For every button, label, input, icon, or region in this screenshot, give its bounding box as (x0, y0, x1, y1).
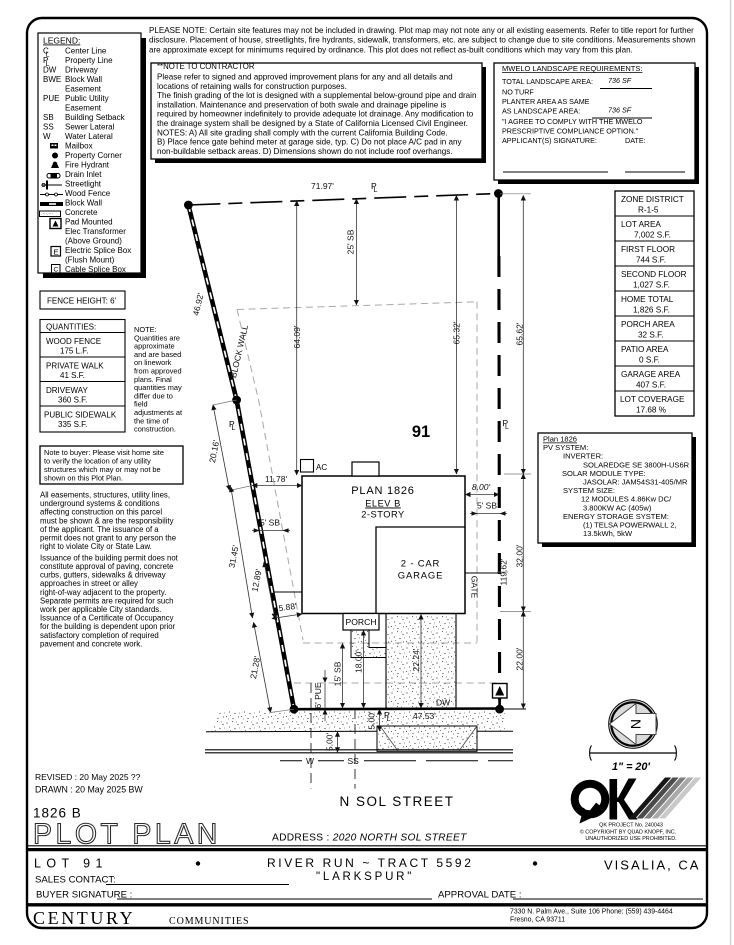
svg-text:locations of retaining walls f: locations of retaining walls for constru… (157, 82, 347, 91)
svg-text:© COPYRIGHT BY QUAD KNOPF, I: © COPYRIGHT BY QUAD KNOPF, INC. (580, 828, 676, 835)
svg-text:construction.: construction. (134, 425, 176, 434)
svg-text:17.68 %: 17.68 % (636, 406, 666, 415)
svg-text:E: E (54, 248, 59, 257)
svg-text:DW: DW (43, 66, 57, 75)
svg-text:Center Line: Center Line (65, 47, 107, 56)
svg-text:L: L (232, 425, 236, 432)
svg-text:LOT 91: LOT 91 (34, 857, 108, 871)
svg-text:119.62': 119.62' (499, 558, 509, 585)
svg-text:The finish grading of the lot: The finish grading of the lot is designe… (157, 91, 476, 100)
svg-text:Fresno, CA 93711: Fresno, CA 93711 (510, 917, 565, 924)
svg-text:DW: DW (436, 698, 450, 708)
svg-text:25' SB: 25' SB (345, 229, 355, 254)
svg-text:41 S.F.: 41 S.F. (60, 371, 85, 380)
svg-text:ZONE DISTRICT: ZONE DISTRICT (621, 195, 684, 204)
svg-text:QK PROJECT No. 240043: QK PROJECT No. 240043 (599, 822, 663, 828)
svg-text:6' PUE: 6' PUE (313, 682, 323, 709)
svg-text:ADDRESS : 2020 NORTH SOL STRE: ADDRESS : 2020 NORTH SOL STREET (272, 833, 467, 844)
svg-text:PLAN 1826: PLAN 1826 (351, 485, 414, 497)
svg-text:HOME TOTAL: HOME TOTAL (621, 295, 674, 304)
svg-text:71.97': 71.97' (311, 181, 334, 191)
svg-text:GARAGE AREA: GARAGE AREA (621, 370, 681, 379)
svg-text:GATE: GATE (470, 576, 480, 599)
svg-text:MWELO LANDSCAPE REQUIREMENTS:: MWELO LANDSCAPE REQUIREMENTS: (502, 64, 642, 73)
svg-text:22.24': 22.24' (411, 648, 421, 671)
svg-text:Building Setback: Building Setback (65, 113, 126, 122)
svg-text:22.00': 22.00' (515, 647, 525, 670)
svg-text:N: N (628, 719, 644, 729)
svg-text:5' SB: 5' SB (477, 501, 497, 511)
svg-text:13.5kWh, 5kW: 13.5kWh, 5kW (583, 529, 633, 538)
svg-text:VISALIA, CA: VISALIA, CA (604, 858, 700, 873)
svg-text:PLANTER AREA AS SAME: PLANTER AREA AS SAME (502, 97, 590, 106)
svg-text:Property Corner: Property Corner (65, 151, 122, 160)
svg-text:PRESCRIPTIVE COMPLIANCE OPTION: PRESCRIPTIVE COMPLIANCE OPTION." (502, 127, 639, 136)
svg-text:407 S.F.: 407 S.F. (636, 381, 666, 390)
svg-text:Water Lateral: Water Lateral (65, 132, 113, 141)
svg-text:·⋯·⋯: ·⋯·⋯ (41, 212, 53, 217)
svg-text:Easement: Easement (65, 104, 102, 113)
svg-text:right to violate City or State: right to violate City or State Law. (40, 542, 152, 551)
svg-text:PUE: PUE (43, 94, 59, 103)
svg-text:LEGEND:: LEGEND: (43, 36, 80, 46)
svg-text:Fire Hydrant: Fire Hydrant (65, 161, 110, 170)
svg-text:DATE:: DATE: (625, 136, 646, 145)
svg-text:PORCH: PORCH (346, 617, 377, 627)
svg-text:Property Line: Property Line (65, 56, 113, 65)
svg-text:"I AGREE TO COMPLY WITH THE MW: "I AGREE TO COMPLY WITH THE MWELO (502, 117, 643, 126)
svg-text:PRIVATE WALK: PRIVATE WALK (46, 362, 104, 371)
svg-text:WOOD FENCE: WOOD FENCE (46, 337, 101, 346)
svg-text:(Flush Mount): (Flush Mount) (65, 256, 115, 265)
svg-text:REVISED : 20 May 2025 ??: REVISED : 20 May 2025 ?? (35, 772, 141, 782)
svg-text:B) Place fence gate behind met: B) Place fence gate behind meter at gara… (157, 138, 463, 147)
svg-text:Public Utility: Public Utility (65, 94, 109, 103)
svg-text:UNAUTHORIZED USE PROHIBITED.: UNAUTHORIZED USE PROHIBITED. (585, 836, 676, 842)
svg-text:PORCH AREA: PORCH AREA (621, 320, 675, 329)
svg-text:disclosure. Placement of hous: disclosure. Placement of house, streetli… (149, 36, 696, 45)
svg-text:2 - CAR: 2 - CAR (401, 559, 440, 570)
svg-text:C: C (54, 267, 59, 274)
svg-text:Driveway: Driveway (65, 66, 98, 75)
svg-text:Drain Inlet: Drain Inlet (65, 170, 102, 179)
svg-text:ELEV B: ELEV B (365, 499, 401, 509)
svg-text:736 SF: 736 SF (608, 106, 632, 115)
svg-text:Block Wall: Block Wall (65, 199, 102, 208)
svg-text:Wood Fence: Wood Fence (65, 189, 111, 198)
svg-text:PLEASE NOTE: Certain site fea: PLEASE NOTE: Certain site features may n… (149, 26, 694, 35)
svg-text:1,826 S.F.: 1,826 S.F. (633, 306, 670, 315)
svg-text:5.00': 5.00' (367, 711, 377, 730)
svg-text:the drainage system shall be d: the drainage system shall be designed by… (157, 119, 468, 128)
svg-text:TOTAL LANDSCAPE AREA:: TOTAL LANDSCAPE AREA: (502, 77, 593, 86)
svg-text:335 S.F.: 335 S.F. (58, 420, 87, 429)
svg-text:PUBLIC SIDEWALK: PUBLIC SIDEWALK (44, 411, 117, 420)
svg-text:Pad Mounted: Pad Mounted (65, 218, 113, 227)
svg-text:Block Wall: Block Wall (65, 75, 102, 84)
svg-text:736 SF: 736 SF (608, 76, 632, 85)
svg-text:1,027 S.F.: 1,027 S.F. (633, 281, 670, 290)
svg-text:DRIVEWAY: DRIVEWAY (46, 386, 88, 395)
svg-text:PLOT PLAN: PLOT PLAN (33, 819, 221, 851)
svg-text:GARAGE: GARAGE (398, 571, 443, 582)
svg-text:SS: SS (348, 756, 360, 766)
svg-text:AS LANDSCAPE AREA:: AS LANDSCAPE AREA: (502, 107, 580, 116)
svg-text:AC: AC (316, 463, 327, 472)
svg-text:APPLICANT(S) SIGNATURE:: APPLICANT(S) SIGNATURE: (502, 136, 597, 145)
svg-text:R-1-5: R-1-5 (638, 206, 659, 215)
svg-text:Please refer to signed and app: Please refer to signed and approved impr… (157, 73, 453, 82)
svg-text:32.00': 32.00' (515, 544, 525, 567)
svg-text:LOT AREA: LOT AREA (621, 220, 661, 229)
svg-text:175 L.F.: 175 L.F. (60, 347, 88, 356)
svg-text:SS: SS (43, 123, 54, 132)
svg-text:8.00': 8.00' (472, 482, 491, 492)
svg-text:**NOTE TO CONTRACTOR: **NOTE TO CONTRACTOR (157, 62, 255, 71)
svg-text:FENCE HEIGHT: 6': FENCE HEIGHT: 6' (47, 297, 117, 306)
svg-text:CENTURY: CENTURY (33, 908, 135, 928)
svg-text:Cable Splice Box: Cable Splice Box (65, 265, 126, 274)
svg-text:APPROVAL DATE :: APPROVAL DATE : (438, 890, 522, 901)
svg-text:non-buildable setback areas.: non-buildable setback areas. D) Dimensio… (157, 147, 453, 156)
svg-text:installation. Maintenance and: installation. Maintenance and preservati… (157, 100, 446, 109)
svg-text:Mailbox: Mailbox (65, 142, 93, 151)
svg-text:64.09': 64.09' (292, 325, 302, 348)
svg-text:Sewer Lateral: Sewer Lateral (65, 123, 115, 132)
svg-text:SB: SB (43, 113, 54, 122)
svg-text:Concrete: Concrete (65, 208, 98, 217)
svg-text:7,002 S.F.: 7,002 S.F. (634, 231, 671, 240)
svg-text:shown on this Plot Plan.: shown on this Plot Plan. (44, 474, 123, 483)
svg-text:47.53': 47.53' (413, 711, 436, 721)
svg-text:32 S.F.: 32 S.F. (638, 331, 664, 340)
svg-text:SALES CONTACT:: SALES CONTACT: (35, 875, 116, 886)
svg-text:65.62': 65.62' (515, 322, 525, 345)
svg-text:65.32': 65.32' (452, 321, 462, 344)
svg-text:0 S.F.: 0 S.F. (639, 356, 660, 365)
svg-text:DRAWN : 20 May 2025 BW: DRAWN : 20 May 2025 BW (35, 785, 143, 795)
svg-text:744 S.F.: 744 S.F. (636, 256, 666, 265)
svg-text:PATIO AREA: PATIO AREA (621, 345, 669, 354)
svg-text:(Above Ground): (Above Ground) (65, 237, 122, 246)
svg-text:L: L (374, 187, 378, 194)
svg-text:5' SB: 5' SB (260, 518, 280, 528)
svg-text:18.00': 18.00' (354, 650, 364, 673)
svg-text:W: W (306, 756, 314, 766)
svg-text:1" = 20': 1" = 20' (612, 761, 650, 773)
svg-text:Elec Transformer: Elec Transformer (65, 227, 126, 236)
svg-text:Electric Splice Box: Electric Splice Box (65, 246, 131, 255)
svg-text:5.00': 5.00' (325, 733, 335, 752)
svg-text:QUANTITIES:: QUANTITIES: (46, 323, 96, 332)
svg-text:pavement and concrete work.: pavement and concrete work. (40, 639, 142, 648)
svg-text:BWE: BWE (43, 75, 61, 84)
svg-text:FIRST FLOOR: FIRST FLOOR (621, 245, 675, 254)
svg-text:"LARKSPUR": "LARKSPUR" (316, 871, 414, 883)
svg-text:Streetlight: Streetlight (65, 180, 102, 189)
svg-text:LOT COVERAGE: LOT COVERAGE (620, 395, 685, 404)
svg-text:Easement: Easement (65, 85, 102, 94)
svg-text:are approximate except for min: are approximate except for minimums requ… (149, 45, 633, 54)
svg-text:NOTES: A) All site grading s: NOTES: A) All site grading shall comply … (157, 128, 448, 137)
svg-text:N SOL STREET: N SOL STREET (339, 794, 454, 809)
svg-text:7330 N. Palm Ave., Suite 106: 7330 N. Palm Ave., Suite 106 Phone: (559… (510, 909, 673, 916)
svg-text:RIVER RUN ~ TRACT 5592: RIVER RUN ~ TRACT 5592 (267, 856, 473, 870)
svg-text:L: L (387, 716, 391, 723)
svg-text:required by homeowner indefini: required by homeowner indefinitely to pr… (157, 110, 474, 119)
svg-text:L: L (505, 424, 509, 431)
svg-text:15' SB: 15' SB (333, 661, 343, 686)
svg-text:W: W (43, 132, 51, 141)
svg-text:11.78': 11.78' (265, 474, 288, 484)
svg-text:91: 91 (412, 423, 430, 441)
svg-text:SECOND FLOOR: SECOND FLOOR (621, 270, 687, 279)
svg-text:NO TURF: NO TURF (502, 87, 534, 96)
svg-text:2-STORY: 2-STORY (361, 510, 404, 520)
svg-text:360 S.F.: 360 S.F. (58, 396, 87, 405)
svg-text:COMMUNITIES: COMMUNITIES (169, 916, 249, 927)
